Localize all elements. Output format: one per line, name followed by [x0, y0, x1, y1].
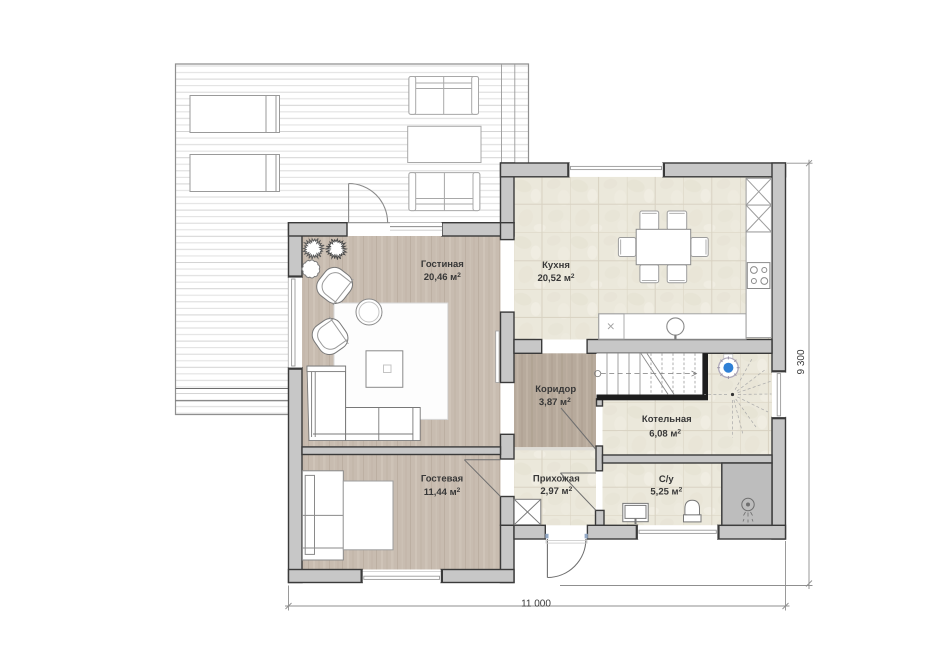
svg-text:11,44 м2: 11,44 м2 — [424, 487, 461, 498]
svg-text:20,52 м2: 20,52 м2 — [537, 273, 574, 284]
svg-text:11 000: 11 000 — [521, 599, 551, 610]
svg-text:Коридор: Коридор — [535, 384, 576, 395]
svg-text:Прихожая: Прихожая — [533, 474, 580, 485]
svg-text:9 300: 9 300 — [796, 349, 807, 374]
svg-text:20,46 м2: 20,46 м2 — [424, 272, 461, 283]
svg-text:Котельная: Котельная — [642, 414, 692, 425]
svg-text:Гостиная: Гостиная — [421, 259, 464, 270]
svg-text:С/у: С/у — [659, 474, 675, 485]
svg-text:5,25 м2: 5,25 м2 — [650, 487, 682, 498]
svg-text:Кухня: Кухня — [542, 260, 570, 271]
svg-text:2,97 м2: 2,97 м2 — [540, 486, 572, 497]
svg-text:6,08 м2: 6,08 м2 — [649, 429, 681, 440]
svg-text:Гостевая: Гостевая — [421, 474, 463, 485]
svg-text:3,87 м2: 3,87 м2 — [539, 397, 571, 408]
